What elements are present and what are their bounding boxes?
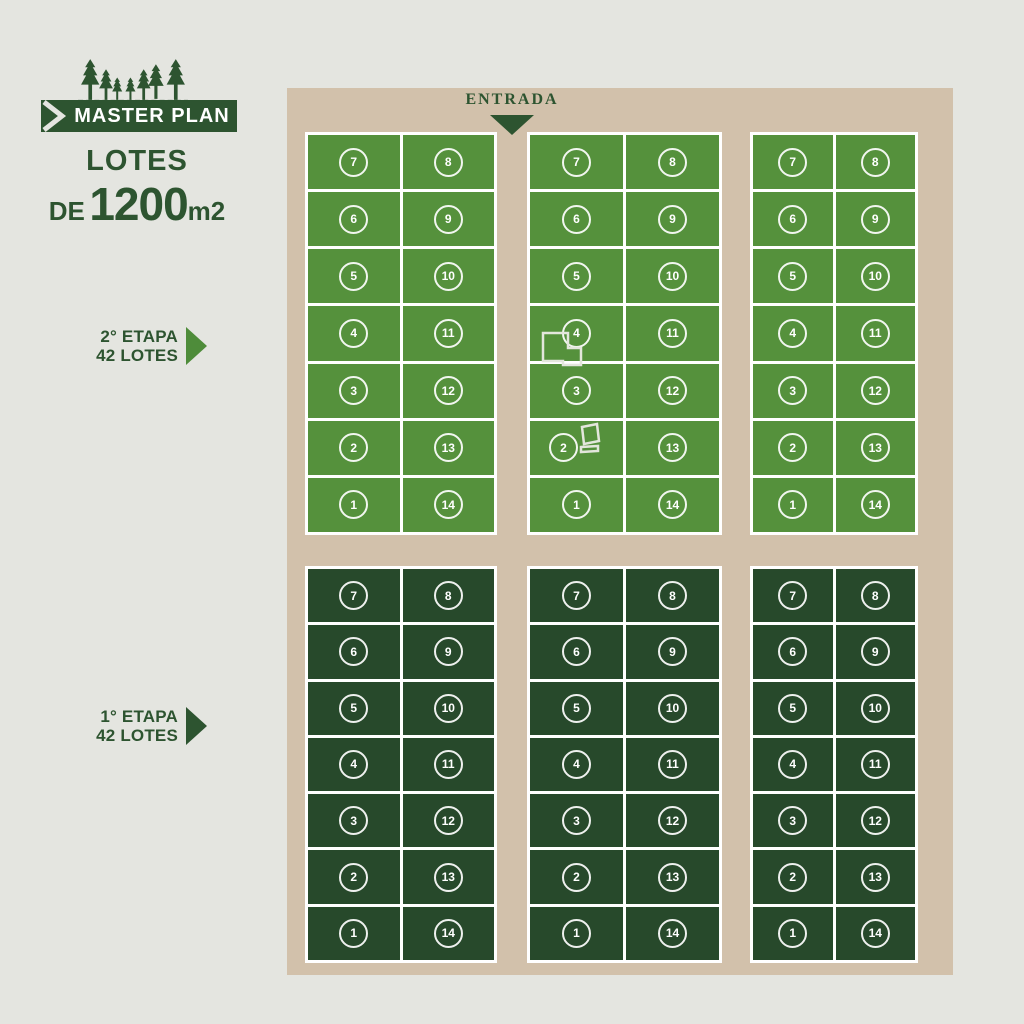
lot-number-badge: 8 (861, 581, 890, 610)
lot-number-badge: 13 (434, 433, 463, 462)
lot-number-badge: 12 (861, 376, 890, 405)
lot-number-badge: 4 (778, 319, 807, 348)
lot-number-badge: 5 (562, 694, 591, 723)
lot-11: 11 (626, 738, 719, 791)
lot-10: 10 (626, 682, 719, 735)
lot-number-badge: 5 (339, 262, 368, 291)
lot-block-bottom-right: 7869510411312213114 (750, 566, 918, 963)
lot-12: 12 (403, 364, 495, 418)
lot-block-top-right: 7869510411312213114 (750, 132, 918, 535)
lot-8: 8 (626, 569, 719, 622)
lot-block-bottom-middle: 7869510411312213114 (527, 566, 722, 963)
lot-number-badge: 7 (562, 148, 591, 177)
lot-number-badge: 12 (434, 806, 463, 835)
lot-2: 2 (530, 421, 623, 475)
lot-11: 11 (403, 306, 495, 360)
lot-7: 7 (753, 135, 833, 189)
lot-number-badge: 14 (434, 919, 463, 948)
lot-3: 3 (753, 794, 833, 847)
lot-number-badge: 9 (861, 637, 890, 666)
lot-number-badge: 7 (339, 581, 368, 610)
lot-5: 5 (308, 682, 400, 735)
lot-number-badge: 1 (562, 490, 591, 519)
lot-5: 5 (530, 249, 623, 303)
lot-number-badge: 2 (778, 433, 807, 462)
banner-title: MASTER PLAN (67, 100, 237, 132)
lot-5: 5 (753, 249, 833, 303)
lot-1: 1 (308, 478, 400, 532)
lot-12: 12 (836, 364, 916, 418)
de-word: DE (49, 196, 85, 226)
lot-3: 3 (530, 364, 623, 418)
lot-4: 4 (308, 306, 400, 360)
lot-12: 12 (836, 794, 916, 847)
lot-10: 10 (836, 682, 916, 735)
lot-3: 3 (308, 364, 400, 418)
lot-number-badge: 7 (778, 581, 807, 610)
lot-number-badge: 2 (778, 863, 807, 892)
size-number: 1200 (89, 178, 187, 230)
lot-1: 1 (308, 907, 400, 960)
lot-12: 12 (626, 364, 719, 418)
pine-trees-icon (78, 56, 188, 104)
lot-14: 14 (403, 907, 495, 960)
lot-13: 13 (626, 850, 719, 903)
lot-8: 8 (403, 569, 495, 622)
lot-13: 13 (626, 421, 719, 475)
lot-5: 5 (753, 682, 833, 735)
site-map: ENTRADA 78695104113122131147869510411312… (287, 88, 953, 975)
lot-1: 1 (530, 478, 623, 532)
lot-number-badge: 7 (562, 581, 591, 610)
lot-4: 4 (308, 738, 400, 791)
lot-block-top-middle: 7869510411312213114 (527, 132, 722, 535)
lot-number-badge: 14 (658, 490, 687, 519)
lot-11: 11 (836, 738, 916, 791)
lot-7: 7 (753, 569, 833, 622)
lot-number-badge: 1 (778, 919, 807, 948)
lot-number-badge: 1 (339, 490, 368, 519)
lot-number-badge: 6 (778, 637, 807, 666)
lot-number-badge: 9 (861, 205, 890, 234)
lot-6: 6 (753, 625, 833, 678)
lot-number-badge: 4 (339, 319, 368, 348)
lot-10: 10 (403, 682, 495, 735)
lot-number-badge: 7 (778, 148, 807, 177)
lot-8: 8 (403, 135, 495, 189)
lot-9: 9 (626, 192, 719, 246)
lot-number-badge: 2 (549, 433, 578, 462)
lot-number-badge: 2 (339, 433, 368, 462)
lot-number-badge: 4 (778, 750, 807, 779)
lot-number-badge: 11 (434, 750, 463, 779)
lot-3: 3 (530, 794, 623, 847)
lot-3: 3 (308, 794, 400, 847)
lot-number-badge: 5 (778, 694, 807, 723)
lot-2: 2 (308, 421, 400, 475)
lot-7: 7 (308, 135, 400, 189)
lot-9: 9 (403, 192, 495, 246)
lot-number-badge: 9 (434, 637, 463, 666)
lot-10: 10 (626, 249, 719, 303)
lot-number-badge: 4 (562, 319, 591, 348)
stage-1-lots: 42 LOTES (84, 726, 178, 745)
lot-2: 2 (308, 850, 400, 903)
lot-11: 11 (403, 738, 495, 791)
lot-2: 2 (753, 850, 833, 903)
lot-5: 5 (308, 249, 400, 303)
lot-6: 6 (530, 192, 623, 246)
lot-number-badge: 8 (658, 148, 687, 177)
lot-number-badge: 9 (658, 637, 687, 666)
lot-number-badge: 12 (658, 376, 687, 405)
stage-2-arrow-icon (186, 327, 207, 365)
lot-number-badge: 8 (434, 148, 463, 177)
lot-number-badge: 4 (339, 750, 368, 779)
lot-8: 8 (626, 135, 719, 189)
lot-number-badge: 14 (861, 490, 890, 519)
lot-size-title: LOTES DE 1200m2 (28, 146, 246, 231)
lot-8: 8 (836, 569, 916, 622)
lot-3: 3 (753, 364, 833, 418)
lot-1: 1 (530, 907, 623, 960)
lot-number-badge: 6 (778, 205, 807, 234)
lot-size-line: DE 1200m2 (28, 177, 246, 231)
lot-9: 9 (836, 625, 916, 678)
lot-11: 11 (626, 306, 719, 360)
lot-number-badge: 12 (861, 806, 890, 835)
lot-number-badge: 14 (658, 919, 687, 948)
master-plan-banner: MASTER PLAN (41, 100, 237, 132)
lot-block-bottom-left: 7869510411312213114 (305, 566, 497, 963)
lot-9: 9 (836, 192, 916, 246)
lot-number-badge: 3 (562, 806, 591, 835)
lot-14: 14 (836, 907, 916, 960)
lot-number-badge: 10 (434, 262, 463, 291)
lot-14: 14 (626, 907, 719, 960)
lot-13: 13 (836, 850, 916, 903)
lot-number-badge: 10 (658, 694, 687, 723)
lot-number-badge: 2 (339, 863, 368, 892)
lot-number-badge: 7 (339, 148, 368, 177)
lot-number-badge: 13 (861, 433, 890, 462)
lot-4: 4 (530, 306, 623, 360)
lot-12: 12 (403, 794, 495, 847)
lotes-word: LOTES (28, 146, 246, 176)
lot-7: 7 (530, 569, 623, 622)
lot-13: 13 (403, 850, 495, 903)
lot-number-badge: 8 (434, 581, 463, 610)
lot-2: 2 (530, 850, 623, 903)
lot-number-badge: 8 (861, 148, 890, 177)
lot-number-badge: 9 (434, 205, 463, 234)
lot-9: 9 (626, 625, 719, 678)
lot-number-badge: 12 (658, 806, 687, 835)
lot-14: 14 (836, 478, 916, 532)
lot-number-badge: 4 (562, 750, 591, 779)
lot-number-badge: 10 (861, 694, 890, 723)
stage-2-text: 2° ETAPA 42 LOTES (84, 327, 178, 365)
lot-number-badge: 5 (778, 262, 807, 291)
stage-2-label: 2° ETAPA 42 LOTES (84, 327, 207, 365)
lot-9: 9 (403, 625, 495, 678)
lot-2: 2 (753, 421, 833, 475)
lot-7: 7 (308, 569, 400, 622)
lot-number-badge: 11 (861, 319, 890, 348)
lot-number-badge: 6 (339, 205, 368, 234)
size-unit: m2 (188, 196, 226, 226)
lot-number-badge: 3 (562, 376, 591, 405)
lot-number-badge: 11 (658, 319, 687, 348)
lot-12: 12 (626, 794, 719, 847)
lot-number-badge: 1 (339, 919, 368, 948)
lot-14: 14 (403, 478, 495, 532)
lot-1: 1 (753, 478, 833, 532)
lot-number-badge: 10 (658, 262, 687, 291)
lot-number-badge: 11 (861, 750, 890, 779)
lot-number-badge: 3 (778, 376, 807, 405)
stage-2-name: 2° ETAPA (84, 327, 178, 346)
lot-number-badge: 14 (434, 490, 463, 519)
stage-1-label: 1° ETAPA 42 LOTES (84, 707, 207, 745)
lot-number-badge: 3 (339, 806, 368, 835)
lot-number-badge: 5 (562, 262, 591, 291)
stage-1-text: 1° ETAPA 42 LOTES (84, 707, 178, 745)
lot-4: 4 (753, 306, 833, 360)
lot-number-badge: 6 (339, 637, 368, 666)
stage-1-arrow-icon (186, 707, 207, 745)
lot-number-badge: 12 (434, 376, 463, 405)
lot-6: 6 (308, 192, 400, 246)
lot-number-badge: 10 (861, 262, 890, 291)
stage-2-lots: 42 LOTES (84, 346, 178, 365)
lot-number-badge: 3 (339, 376, 368, 405)
lot-number-badge: 11 (658, 750, 687, 779)
lot-number-badge: 13 (658, 433, 687, 462)
lot-block-top-left: 7869510411312213114 (305, 132, 497, 535)
entrance-label: ENTRADA (412, 91, 612, 109)
lot-6: 6 (753, 192, 833, 246)
lot-number-badge: 3 (778, 806, 807, 835)
lot-11: 11 (836, 306, 916, 360)
lot-8: 8 (836, 135, 916, 189)
lot-6: 6 (530, 625, 623, 678)
lot-number-badge: 11 (434, 319, 463, 348)
lot-10: 10 (836, 249, 916, 303)
lot-number-badge: 2 (562, 863, 591, 892)
lot-13: 13 (836, 421, 916, 475)
lot-10: 10 (403, 249, 495, 303)
stage-1-name: 1° ETAPA (84, 707, 178, 726)
lot-number-badge: 8 (658, 581, 687, 610)
lot-number-badge: 1 (562, 919, 591, 948)
lot-14: 14 (626, 478, 719, 532)
lot-number-badge: 14 (861, 919, 890, 948)
lot-number-badge: 6 (562, 205, 591, 234)
lot-5: 5 (530, 682, 623, 735)
lot-number-badge: 5 (339, 694, 368, 723)
lot-4: 4 (530, 738, 623, 791)
lot-number-badge: 13 (658, 863, 687, 892)
lot-6: 6 (308, 625, 400, 678)
lot-13: 13 (403, 421, 495, 475)
lot-number-badge: 9 (658, 205, 687, 234)
lot-7: 7 (530, 135, 623, 189)
lot-number-badge: 13 (861, 863, 890, 892)
lot-4: 4 (753, 738, 833, 791)
lot-number-badge: 1 (778, 490, 807, 519)
lot-number-badge: 13 (434, 863, 463, 892)
lot-1: 1 (753, 907, 833, 960)
lot-number-badge: 10 (434, 694, 463, 723)
lot-number-badge: 6 (562, 637, 591, 666)
